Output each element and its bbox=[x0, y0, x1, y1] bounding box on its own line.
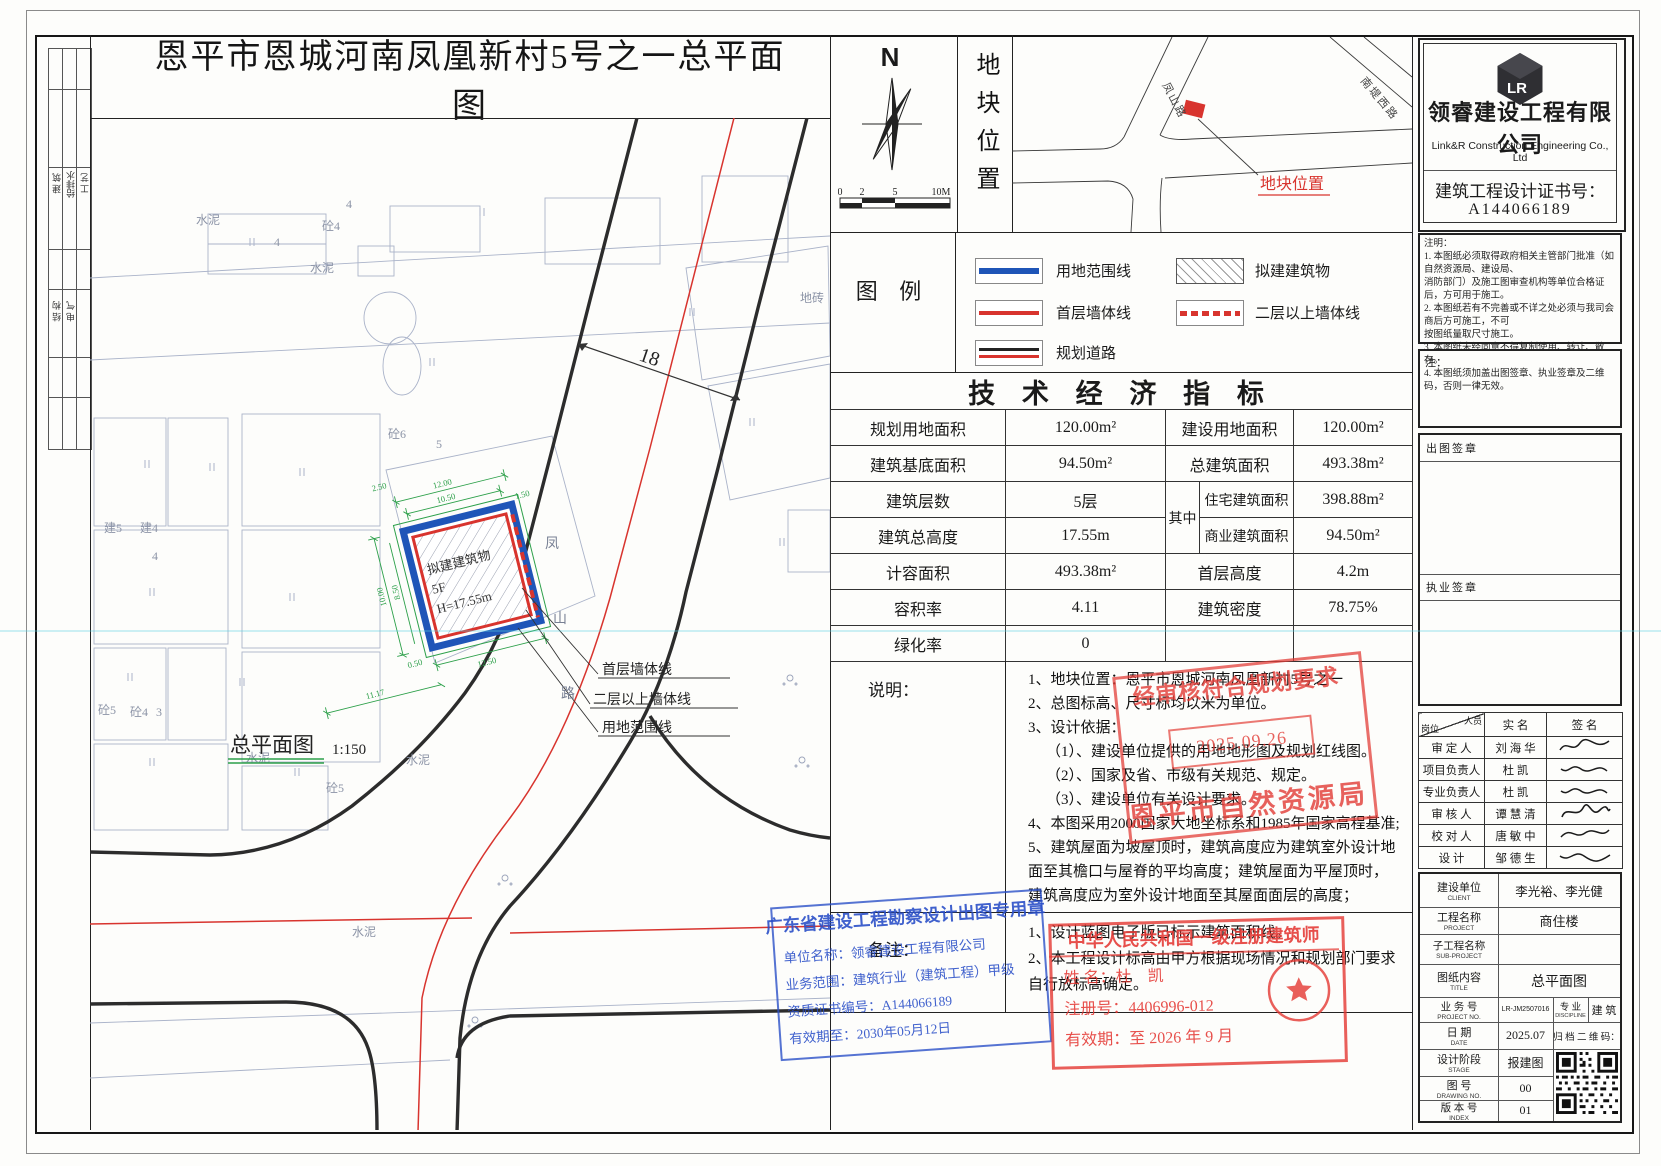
sig-header-diagonal: 人员 岗位 bbox=[1419, 713, 1485, 737]
parcel-label: 5 bbox=[436, 437, 442, 451]
cert-number: A144066189 bbox=[1424, 200, 1616, 220]
ind-label: 建设用地面积 bbox=[1166, 410, 1294, 446]
dim-0.50: 0.50 bbox=[406, 657, 423, 670]
sig-name: 谭 慧 清 bbox=[1485, 803, 1547, 825]
instruction-line: 按图纸量取尺寸施工。 bbox=[1424, 329, 1616, 342]
sig-name: 刘 海 华 bbox=[1485, 737, 1547, 759]
north-label: N bbox=[860, 42, 920, 72]
tb-projectno-label: 业 务 号PROJECT NO. bbox=[1420, 997, 1498, 1022]
architect-seal-icon bbox=[1265, 956, 1333, 1024]
signature-scribble bbox=[1547, 781, 1623, 803]
legend-label: 用地范围线 bbox=[1056, 260, 1131, 281]
blue-stamp-lines: 单位名称：领睿建设工程有限公司 业务范围：建筑行业（建筑工程）甲级 资质证书编号… bbox=[783, 929, 1019, 1053]
divider-row1 bbox=[830, 232, 1412, 233]
ind-value: 78.75% bbox=[1294, 590, 1413, 626]
tb-discipline-value: 建 筑 bbox=[1588, 997, 1620, 1022]
ind-value: 398.88m² bbox=[1294, 482, 1413, 518]
signature-scribble bbox=[1547, 803, 1623, 825]
tb-dwgno-label: 图 号DRAWING NO. bbox=[1420, 1076, 1498, 1100]
note-box-label: 注： bbox=[1425, 354, 1447, 370]
dim-10.50: 10.50 bbox=[435, 491, 456, 505]
parcel-label: 地砖 bbox=[800, 290, 824, 305]
north-compass-icon bbox=[852, 74, 932, 174]
sig-post: 设 计 bbox=[1419, 847, 1485, 869]
ind-label: 计容面积 bbox=[831, 554, 1006, 590]
dim-18: 18 bbox=[636, 344, 662, 371]
practice-seal-label: 执业签章 bbox=[1426, 579, 1478, 595]
tb-client-label: 建设单位CLIENT bbox=[1420, 874, 1498, 907]
ind-label: 建筑密度 bbox=[1166, 590, 1294, 626]
callout-first-floor-wall: 首层墙体线 bbox=[602, 662, 672, 678]
note-box: 注： bbox=[1418, 349, 1622, 428]
sig-name: 唐 敏 中 bbox=[1485, 825, 1547, 847]
ind-value: 94.50m² bbox=[1006, 446, 1166, 482]
divider-north bbox=[957, 35, 958, 232]
legend-symbol-proposed-building bbox=[1176, 258, 1244, 284]
sig-header-name: 实 名 bbox=[1485, 713, 1547, 737]
title-block: 建设单位CLIENT 李光裕、李光健 工程名称PROJECT 商住楼 子工程名称… bbox=[1418, 872, 1622, 1123]
view-title: 总平面图 1:150 bbox=[228, 733, 366, 763]
ind-value: 17.55m bbox=[1006, 518, 1166, 554]
road-width-dimension: 18 bbox=[578, 343, 740, 401]
scale-bar: 0 2 5 10M bbox=[838, 186, 953, 216]
sig-post: 审 核 人 bbox=[1419, 803, 1485, 825]
signature-scribble bbox=[1547, 759, 1623, 781]
ind-label: 建筑基底面积 bbox=[831, 446, 1006, 482]
callouts: 首层墙体线 二层以上墙体线 用地范围线 bbox=[518, 588, 738, 736]
planning-review-stamp: 经审核符合规划要求 2025.09.26 恩平市自然资源局 bbox=[1112, 652, 1372, 839]
legend-symbol-upper-wall bbox=[1176, 300, 1244, 326]
parcel-label: 4 bbox=[346, 197, 352, 211]
sig-name: 杜 凯 bbox=[1485, 781, 1547, 803]
architect-stamp: 中华人民共和国一级注册建筑师 姓 名：杜 凯 注册号：4406996-012 有… bbox=[1048, 916, 1342, 1064]
view-scale: 1:150 bbox=[332, 742, 366, 758]
scale-tick-10m: 10M bbox=[932, 187, 951, 198]
note-line: 建筑高度应为室外设计地面至其屋面面层的高度； bbox=[1028, 884, 1408, 908]
tb-projectno-value: LR-JM2507016 bbox=[1498, 997, 1553, 1022]
scale-tick-5: 5 bbox=[893, 187, 898, 198]
sig-post: 项目负责人 bbox=[1419, 759, 1485, 781]
parcel-label: 3 bbox=[156, 705, 162, 719]
ind-label-qizhong: 其中 bbox=[1166, 482, 1200, 554]
tb-dwgno-value: 00 bbox=[1498, 1076, 1553, 1100]
ind-value: 4.2m bbox=[1294, 554, 1413, 590]
note-line: 面至其檐口与屋脊的平均高度；建筑屋面为平屋顶时， bbox=[1028, 860, 1408, 884]
dim-2.50: 2.50 bbox=[371, 480, 388, 493]
instruction-line: 消防部门）及施工图审查机构等单位合格证后，方可用于施工。 bbox=[1424, 277, 1616, 303]
seal-box: 出图签章 执业签章 bbox=[1418, 433, 1622, 706]
tb-index-value: 01 bbox=[1498, 1100, 1553, 1121]
parcel-label: 水泥 bbox=[352, 925, 376, 939]
sig-header-person: 人员 bbox=[1464, 714, 1482, 727]
tb-subproject-label: 子工程名称SUB-PROJECT bbox=[1420, 934, 1498, 964]
legend-label: 规划道路 bbox=[1056, 342, 1116, 363]
parcel-label: 水泥 bbox=[196, 213, 220, 227]
callout-upper-wall: 二层以上墙体线 bbox=[593, 692, 691, 708]
parcel-label: 水泥 bbox=[406, 753, 430, 767]
parcel-label: 砼6 bbox=[388, 427, 406, 441]
architect-reg-row: 注册号：4406996-012 bbox=[1064, 990, 1233, 1025]
instructions-box: 注明： 1. 本图纸必须取得政府相关主管部门批准（如自然资源局、建设局、 消防部… bbox=[1418, 233, 1622, 344]
issue-seal-label: 出图签章 bbox=[1426, 440, 1478, 456]
road-char-feng: 凤 bbox=[545, 537, 559, 552]
strip-discipline: 结 构 bbox=[50, 301, 63, 321]
cert-label: 建筑工程设计证书号： bbox=[1424, 178, 1616, 200]
tb-stage-label: 设计阶段STAGE bbox=[1420, 1049, 1498, 1076]
indicators-table: 规划用地面积 120.00m² 建设用地面积 120.00m² 建筑基底面积 9… bbox=[830, 409, 1413, 662]
signature-scribble bbox=[1547, 847, 1623, 869]
scale-tick-0: 0 bbox=[838, 187, 843, 198]
sig-name: 杜 凯 bbox=[1485, 759, 1547, 781]
road-char-lu: 路 bbox=[561, 686, 575, 702]
ind-label: 总建筑面积 bbox=[1166, 446, 1294, 482]
ind-label: 首层高度 bbox=[1166, 554, 1294, 590]
parcel-label: 砼4 bbox=[130, 705, 148, 719]
sig-header-post: 岗位 bbox=[1421, 722, 1439, 735]
ind-value: 4.11 bbox=[1006, 590, 1166, 626]
legend-symbol-firstfloor-wall bbox=[975, 300, 1043, 326]
location-map: 凤山路 南堤西路 地块位置 bbox=[1012, 37, 1412, 232]
ind-value: 493.38m² bbox=[1006, 554, 1166, 590]
tb-discipline-label: 专 业DISCIPLINE bbox=[1553, 997, 1588, 1022]
left-signoff-strip: 建 筑 给排水 工 艺 结 构 电 气 bbox=[48, 48, 92, 450]
strip-discipline: 电 气 bbox=[64, 301, 77, 321]
sheet-title: 恩平市恩城河南凤凰新村5号之一总平面图 bbox=[150, 52, 790, 104]
callout-land-boundary: 用地范围线 bbox=[602, 719, 672, 736]
sig-post: 审 定 人 bbox=[1419, 737, 1485, 759]
location-panel-title: 地块位置 bbox=[968, 52, 1003, 220]
drawing-sheet: 建 筑 给排水 工 艺 结 构 电 气 恩平市恩城河南凤凰新村5号之一总平面图 bbox=[0, 0, 1661, 1166]
sig-header-sig: 签 名 bbox=[1547, 713, 1623, 737]
architect-stamp-lines: 姓 名：杜 凯 注册号：4406996-012 有效期：至 2026 年 9 月 bbox=[1063, 959, 1233, 1056]
strip-discipline: 给排水 bbox=[64, 171, 77, 198]
tb-date-value: 2025.07 bbox=[1498, 1022, 1553, 1049]
blue-design-stamp: 广东省建设工程勘察设计出图专用章 单位名称：领睿建设工程有限公司 业务范围：建筑… bbox=[770, 889, 1048, 1057]
parcel-label: 4 bbox=[274, 235, 280, 249]
legend-symbol-planned-road bbox=[975, 340, 1043, 366]
parcel-label: 水泥 bbox=[310, 261, 334, 275]
indicators-title: 技 术 经 济 指 标 bbox=[830, 374, 1412, 408]
company-name-en: Link&R Construction Engineering Co., Ltd bbox=[1424, 144, 1616, 160]
map-road-nandixi: 南堤西路 bbox=[1358, 75, 1401, 123]
architect-name-row: 姓 名：杜 凯 bbox=[1063, 959, 1232, 994]
tb-content-value: 总平面图 bbox=[1498, 964, 1620, 997]
legend-title: 图 例 bbox=[840, 270, 945, 310]
architect-valid-row: 有效期：至 2026 年 9 月 bbox=[1065, 1021, 1234, 1056]
ind-label: 容积率 bbox=[831, 590, 1006, 626]
map-marker-label: 地块位置 bbox=[1260, 175, 1324, 193]
company-box: LR 领睿建设工程有限公司 Link&R Construction Engine… bbox=[1418, 38, 1626, 232]
instruction-line: 2. 本图纸若有不完善或不详之处必须与我司会商后方可施工，不可 bbox=[1424, 303, 1616, 329]
tb-date-label: 日 期DATE bbox=[1420, 1022, 1498, 1049]
qr-code bbox=[1556, 1052, 1618, 1114]
view-label: 总平面图 bbox=[230, 733, 314, 757]
parcel-label: 建5 bbox=[104, 521, 122, 535]
notes-label: 说明： bbox=[868, 676, 919, 701]
dim-12.50: 12.50 bbox=[476, 655, 497, 669]
ind-value: 120.00m² bbox=[1006, 410, 1166, 446]
sig-post: 专业负责人 bbox=[1419, 781, 1485, 803]
ind-value: 94.50m² bbox=[1294, 518, 1413, 554]
scan-artifact-line bbox=[0, 630, 1661, 632]
ind-label: 建筑层数 bbox=[831, 482, 1006, 518]
parcel-label: 砼4 bbox=[322, 219, 340, 233]
divider-legend bbox=[955, 232, 956, 372]
signature-scribble bbox=[1547, 825, 1623, 847]
ind-value: 120.00m² bbox=[1294, 410, 1413, 446]
ind-label: 商业建筑面积 bbox=[1200, 518, 1294, 554]
tb-stage-value: 报建图 bbox=[1498, 1049, 1553, 1076]
dim-1.50: 1.50 bbox=[514, 488, 531, 501]
map-road-fengshan: 凤山路 bbox=[1159, 80, 1189, 121]
ind-value: 5层 bbox=[1006, 482, 1166, 518]
tb-project-value: 商住楼 bbox=[1498, 907, 1620, 934]
sig-post: 校 对 人 bbox=[1419, 825, 1485, 847]
legend-symbol-boundary bbox=[975, 258, 1043, 284]
instruction-line: 1. 本图纸必须取得政府相关主管部门批准（如自然资源局、建设局、 bbox=[1424, 251, 1616, 277]
legend-label: 拟建建筑物 bbox=[1255, 260, 1330, 281]
ind-label: 住宅建筑面积 bbox=[1200, 482, 1294, 518]
note-line: 5、建筑屋面为坡屋顶时，建筑高度应为建筑室外设计地 bbox=[1028, 836, 1408, 860]
ind-label: 规划用地面积 bbox=[831, 410, 1006, 446]
legend-label: 二层以上墙体线 bbox=[1255, 302, 1360, 323]
parcel-label: 砼5 bbox=[326, 781, 344, 795]
ind-value: 493.38m² bbox=[1294, 446, 1413, 482]
strip-discipline: 建 筑 bbox=[50, 173, 63, 193]
ind-label: 建筑总高度 bbox=[831, 518, 1006, 554]
tb-qr-label: 归 档 二 维 码： bbox=[1553, 1022, 1620, 1049]
site-plan: 拟建建筑物 5F H=17.55m 12.00 10.50 2.50 1.50 … bbox=[90, 118, 830, 1130]
signature-table: 人员 岗位 实 名 签 名 审 定 人刘 海 华 项目负责人杜 凯 专业负责人杜… bbox=[1418, 712, 1623, 869]
sig-name: 邹 德 生 bbox=[1485, 847, 1547, 869]
road-char-shan: 山 bbox=[553, 611, 567, 627]
scale-tick-2: 2 bbox=[860, 187, 865, 198]
company-name-cn: 领睿建设工程有限公司 bbox=[1424, 112, 1616, 142]
signature-scribble bbox=[1547, 737, 1623, 759]
instructions-label: 注明： bbox=[1424, 238, 1616, 251]
proposed-building: 拟建建筑物 5F H=17.55m 12.00 10.50 2.50 1.50 … bbox=[273, 447, 571, 720]
tb-subproject-value bbox=[1498, 934, 1620, 964]
parcel-label: 砼5 bbox=[98, 703, 116, 717]
tb-content-label: 图纸内容TITLE bbox=[1420, 964, 1498, 997]
tb-project-label: 工程名称PROJECT bbox=[1420, 907, 1498, 934]
tb-client-value: 李光裕、李光健 bbox=[1498, 874, 1620, 907]
tb-index-label: 版 本 号INDEX bbox=[1420, 1100, 1498, 1121]
legend-label: 首层墙体线 bbox=[1056, 302, 1131, 323]
parcel-label: 4 bbox=[152, 549, 158, 563]
parcel-label: 建4 bbox=[140, 521, 158, 535]
